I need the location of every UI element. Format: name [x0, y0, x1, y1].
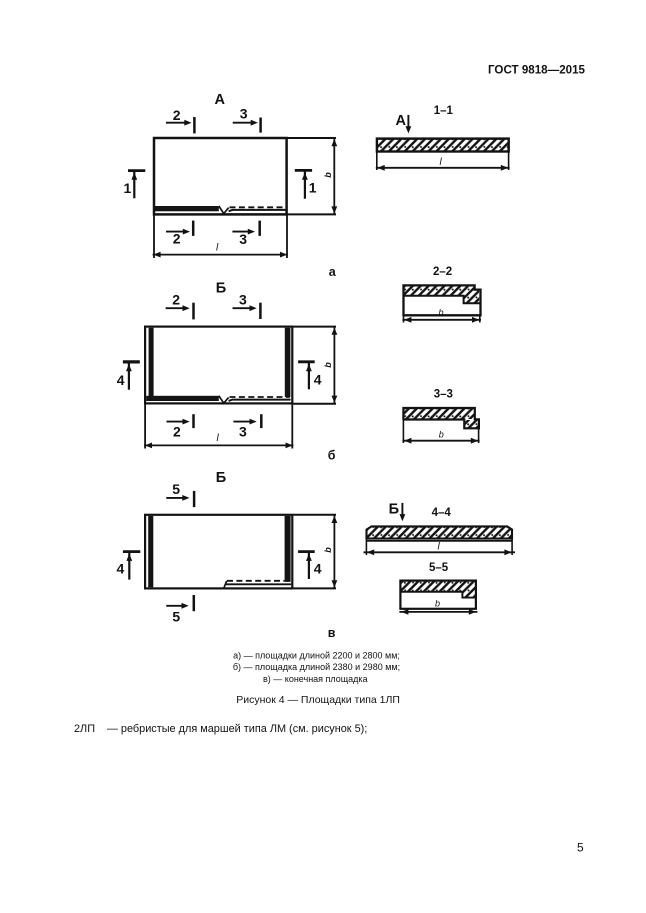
- svg-text:5: 5: [172, 608, 180, 624]
- svg-text:Б: Б: [389, 501, 399, 517]
- svg-text:l: l: [216, 243, 219, 254]
- svg-text:l: l: [438, 541, 441, 552]
- svg-text:3–3: 3–3: [434, 389, 453, 401]
- svg-text:в) — конечная площадка: в) — конечная площадка: [263, 674, 368, 684]
- svg-text:l: l: [440, 157, 443, 168]
- svg-text:Б: Б: [216, 470, 226, 486]
- svg-text:А: А: [396, 113, 407, 129]
- svg-text:b: b: [323, 172, 333, 178]
- svg-text:4: 4: [117, 561, 125, 577]
- svg-text:4–4: 4–4: [432, 507, 452, 519]
- svg-text:l: l: [217, 433, 220, 444]
- svg-text:2ЛП— ребристые для маршей типа: 2ЛП— ребристые для маршей типа ЛМ (см. р…: [74, 723, 367, 735]
- svg-text:4: 4: [117, 372, 125, 388]
- svg-text:3: 3: [239, 231, 247, 247]
- svg-text:5: 5: [172, 481, 180, 497]
- svg-text:b: b: [323, 547, 333, 553]
- svg-text:b: b: [435, 599, 440, 609]
- svg-text:б: б: [328, 449, 336, 463]
- svg-text:2: 2: [172, 292, 180, 308]
- svg-text:3: 3: [239, 424, 247, 440]
- svg-text:б) — площадка длиной 2380 и 29: б) — площадка длиной 2380 и 2980 мм;: [233, 662, 400, 672]
- svg-text:а) — площадки длиной 2200 и 28: а) — площадки длиной 2200 и 2800 мм;: [233, 651, 400, 661]
- svg-text:2: 2: [173, 424, 181, 440]
- svg-text:1: 1: [124, 180, 132, 196]
- svg-text:Рисунок 4 — Площадки типа 1ЛП: Рисунок 4 — Площадки типа 1ЛП: [236, 694, 400, 706]
- svg-text:в: в: [328, 626, 336, 640]
- svg-text:b: b: [439, 308, 444, 318]
- svg-text:b: b: [323, 362, 333, 368]
- svg-text:4: 4: [314, 372, 322, 388]
- svg-text:2–2: 2–2: [433, 266, 452, 278]
- svg-text:5: 5: [577, 840, 584, 854]
- svg-text:3: 3: [240, 106, 248, 122]
- svg-text:Б: Б: [216, 280, 226, 296]
- svg-text:А: А: [215, 92, 226, 108]
- svg-text:2: 2: [173, 107, 181, 123]
- svg-text:1–1: 1–1: [434, 105, 454, 117]
- svg-text:3: 3: [239, 291, 247, 307]
- svg-text:2: 2: [173, 231, 181, 247]
- svg-text:4: 4: [314, 561, 322, 577]
- svg-text:5–5: 5–5: [429, 562, 449, 574]
- svg-text:а: а: [329, 265, 337, 279]
- svg-text:ГОСТ 9818—2015: ГОСТ 9818—2015: [488, 63, 586, 76]
- svg-text:1: 1: [309, 180, 317, 196]
- svg-text:b: b: [439, 430, 444, 440]
